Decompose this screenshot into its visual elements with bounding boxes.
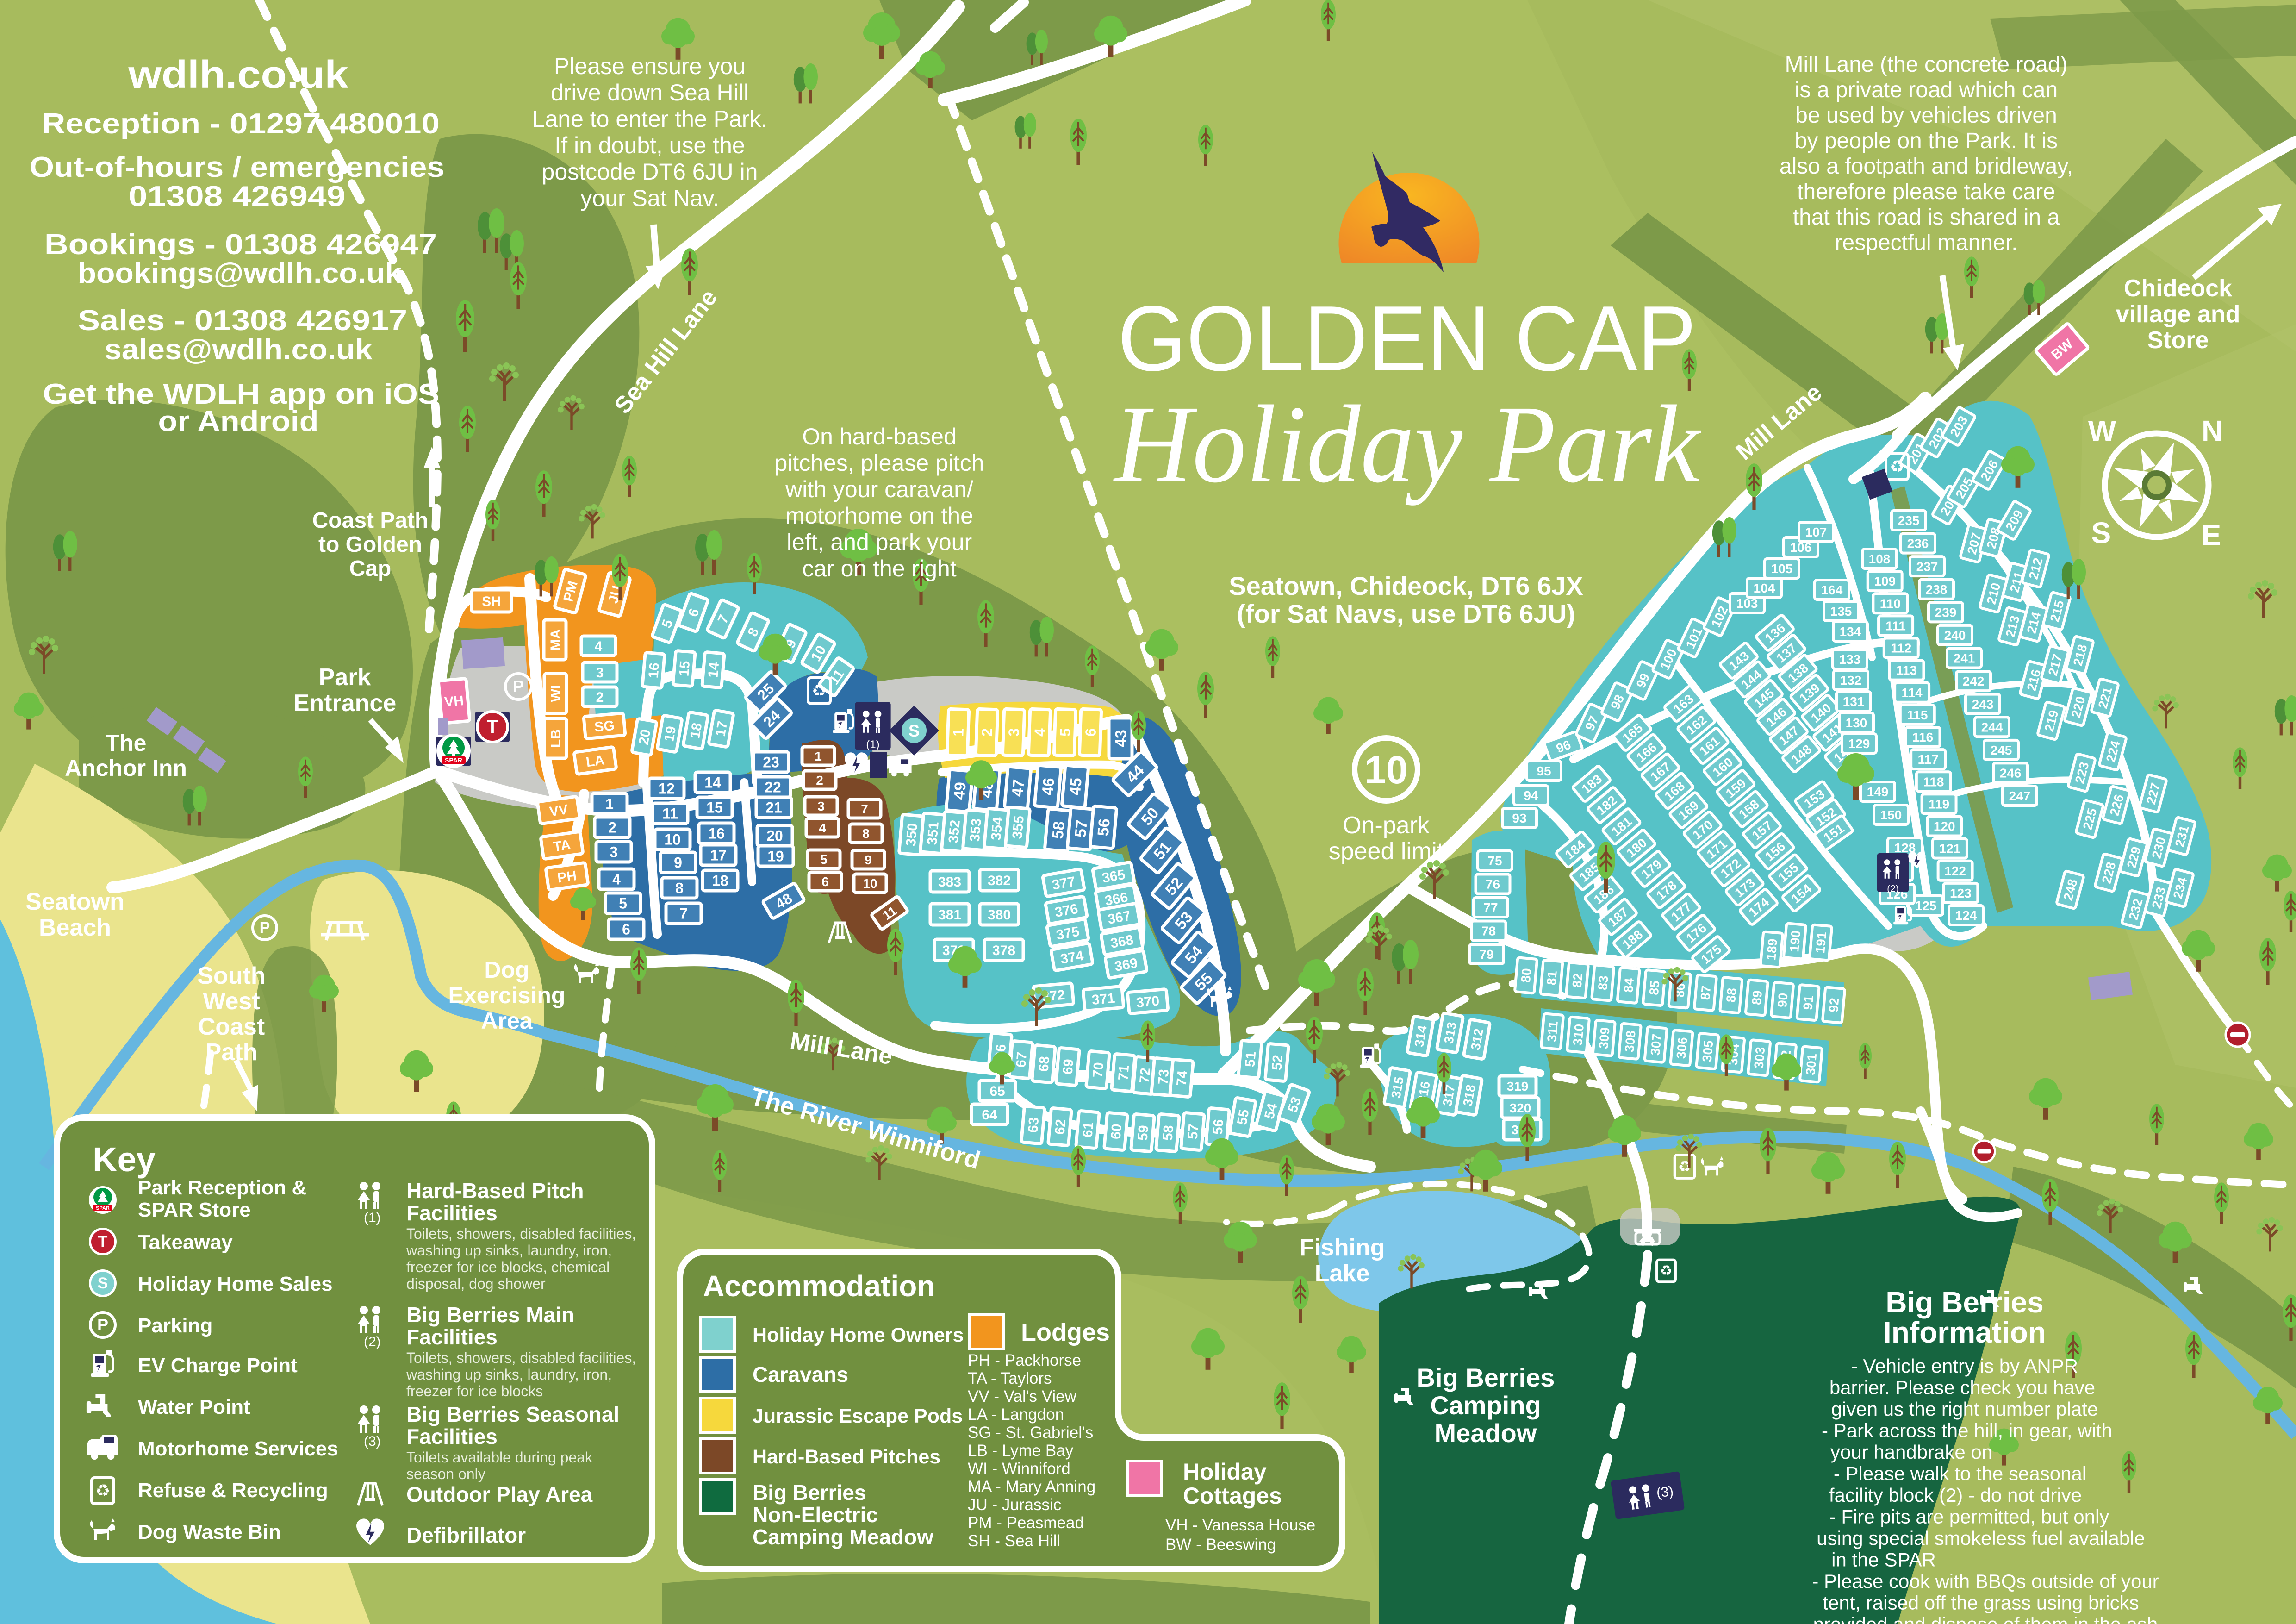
svg-text:(2): (2) bbox=[1887, 884, 1898, 894]
svg-text:164: 164 bbox=[1821, 583, 1843, 597]
svg-text:58: 58 bbox=[1049, 821, 1068, 840]
svg-text:56: 56 bbox=[1095, 818, 1114, 837]
svg-text:Park Reception &: Park Reception & bbox=[138, 1176, 306, 1199]
svg-text:drive down Sea Hill: drive down Sea Hill bbox=[551, 80, 749, 106]
svg-text:133: 133 bbox=[1839, 652, 1861, 667]
svg-text:Big Berries: Big Berries bbox=[753, 1480, 866, 1505]
svg-text:SPAR Store: SPAR Store bbox=[138, 1199, 251, 1221]
svg-text:111: 111 bbox=[1885, 618, 1906, 633]
svg-text:01308 426949: 01308 426949 bbox=[129, 181, 346, 212]
svg-text:Facilities: Facilities bbox=[406, 1325, 498, 1349]
svg-text:SPAR: SPAR bbox=[96, 1206, 110, 1211]
svg-text:131: 131 bbox=[1843, 694, 1865, 709]
svg-text:88: 88 bbox=[1724, 987, 1739, 1003]
svg-text:62: 62 bbox=[1052, 1118, 1069, 1135]
svg-text:Exercising: Exercising bbox=[448, 982, 566, 1008]
svg-text:303: 303 bbox=[1751, 1046, 1767, 1069]
svg-text:69: 69 bbox=[1060, 1058, 1076, 1075]
svg-text:Key: Key bbox=[93, 1140, 156, 1179]
svg-text:236: 236 bbox=[1907, 537, 1929, 551]
svg-text:P: P bbox=[260, 919, 270, 937]
svg-text:BW - Beeswing: BW - Beeswing bbox=[1165, 1536, 1276, 1554]
svg-text:46: 46 bbox=[1039, 777, 1058, 796]
svg-text:43: 43 bbox=[1112, 730, 1130, 747]
svg-text:SG: SG bbox=[594, 718, 615, 735]
svg-text:- Fire pits are permitted, but: - Fire pits are permitted, but only bbox=[1829, 1506, 2109, 1528]
svg-text:Water Point: Water Point bbox=[138, 1396, 250, 1418]
svg-text:On-park: On-park bbox=[1343, 812, 1430, 839]
svg-text:VH - Vanessa House: VH - Vanessa House bbox=[1165, 1516, 1315, 1534]
svg-text:6: 6 bbox=[622, 921, 630, 938]
svg-text:PM - Peasmead: PM - Peasmead bbox=[968, 1514, 1084, 1532]
svg-text:84: 84 bbox=[1621, 977, 1636, 993]
svg-text:87: 87 bbox=[1698, 985, 1714, 1001]
svg-text:S: S bbox=[908, 721, 920, 740]
svg-text:79: 79 bbox=[1479, 947, 1493, 962]
svg-text:Reception - 01297 480010: Reception - 01297 480010 bbox=[42, 108, 440, 140]
svg-text:- Vehicle entry is by ANPR: - Vehicle entry is by ANPR bbox=[1851, 1355, 2078, 1377]
svg-text:320: 320 bbox=[1510, 1101, 1531, 1115]
svg-text:9: 9 bbox=[865, 853, 872, 867]
svg-text:village and: village and bbox=[2116, 301, 2240, 328]
svg-text:20: 20 bbox=[636, 728, 653, 746]
svg-text:94: 94 bbox=[1524, 788, 1538, 803]
svg-text:Coast: Coast bbox=[198, 1013, 265, 1040]
svg-text:washing up sinks, laundry, iro: washing up sinks, laundry, iron, bbox=[406, 1366, 612, 1383]
svg-text:Dog: Dog bbox=[484, 957, 529, 983]
svg-text:307: 307 bbox=[1648, 1033, 1664, 1056]
svg-text:7: 7 bbox=[679, 906, 688, 922]
svg-text:381: 381 bbox=[938, 907, 961, 923]
svg-text:243: 243 bbox=[1972, 697, 1994, 712]
svg-text:11: 11 bbox=[662, 806, 678, 822]
svg-text:or Android: or Android bbox=[158, 406, 319, 437]
svg-text:16: 16 bbox=[646, 662, 662, 679]
svg-text:Mill Lane (the concrete road): Mill Lane (the concrete road) bbox=[1785, 52, 2068, 77]
svg-text:MA - Mary Anning: MA - Mary Anning bbox=[968, 1478, 1095, 1496]
svg-text:(for Sat Navs, use DT6 6JU): (for Sat Navs, use DT6 6JU) bbox=[1237, 599, 1575, 628]
svg-text:E: E bbox=[2202, 518, 2221, 552]
svg-text:93: 93 bbox=[1512, 811, 1526, 825]
svg-text:5: 5 bbox=[1057, 728, 1074, 737]
svg-text:8: 8 bbox=[675, 880, 684, 897]
svg-text:6: 6 bbox=[1082, 728, 1099, 737]
svg-text:117: 117 bbox=[1918, 752, 1939, 767]
svg-text:10: 10 bbox=[664, 831, 681, 848]
svg-text:(3): (3) bbox=[364, 1434, 381, 1449]
svg-text:68: 68 bbox=[1036, 1056, 1052, 1072]
svg-text:129: 129 bbox=[1848, 737, 1870, 751]
svg-text:5: 5 bbox=[820, 852, 828, 867]
svg-text:75: 75 bbox=[1487, 854, 1502, 868]
svg-text:given us the right number plat: given us the right number plate bbox=[1831, 1398, 2098, 1420]
svg-text:81: 81 bbox=[1544, 970, 1560, 986]
svg-text:130: 130 bbox=[1846, 716, 1867, 730]
svg-text:Entrance: Entrance bbox=[293, 690, 397, 717]
svg-text:107: 107 bbox=[1805, 525, 1827, 539]
svg-text:113: 113 bbox=[1896, 663, 1917, 678]
svg-text:W: W bbox=[2088, 414, 2116, 448]
svg-text:247: 247 bbox=[2009, 789, 2031, 803]
svg-text:319: 319 bbox=[1507, 1079, 1529, 1093]
svg-text:♻: ♻ bbox=[95, 1481, 110, 1500]
svg-text:motorhome on the: motorhome on the bbox=[785, 503, 973, 529]
svg-text:118: 118 bbox=[1923, 775, 1944, 789]
svg-text:Toilets, showers, disabled fac: Toilets, showers, disabled facilities, bbox=[406, 1349, 636, 1366]
svg-text:also a footpath and bridleway,: also a footpath and bridleway, bbox=[1780, 154, 2073, 179]
svg-text:7: 7 bbox=[861, 802, 868, 816]
svg-text:Store: Store bbox=[2147, 327, 2209, 354]
svg-text:freezer for ice blocks: freezer for ice blocks bbox=[406, 1383, 543, 1399]
svg-text:4: 4 bbox=[1031, 728, 1048, 737]
svg-text:76: 76 bbox=[1486, 877, 1500, 892]
svg-text:Anchor Inn: Anchor Inn bbox=[65, 755, 187, 781]
svg-text:134: 134 bbox=[1840, 625, 1861, 639]
svg-text:freezer for ice blocks, chemic: freezer for ice blocks, chemical bbox=[406, 1259, 610, 1275]
svg-text:370: 370 bbox=[1136, 993, 1160, 1011]
svg-text:78: 78 bbox=[1481, 924, 1496, 938]
svg-text:disposal, dog shower: disposal, dog shower bbox=[406, 1275, 546, 1292]
svg-text:♻: ♻ bbox=[1890, 457, 1904, 476]
svg-text:by people on the Park. It is: by people on the Park. It is bbox=[1795, 129, 2058, 153]
svg-text:3: 3 bbox=[817, 799, 825, 813]
svg-text:(1): (1) bbox=[866, 738, 879, 751]
svg-text:Park: Park bbox=[319, 664, 371, 691]
svg-text:Meadow: Meadow bbox=[1435, 1418, 1537, 1448]
svg-text:149: 149 bbox=[1867, 785, 1889, 799]
svg-text:Hard-Based Pitches: Hard-Based Pitches bbox=[753, 1446, 940, 1468]
svg-text:105: 105 bbox=[1771, 562, 1793, 576]
svg-text:respectful manner.: respectful manner. bbox=[1835, 231, 2018, 255]
svg-text:in the SPAR: in the SPAR bbox=[1831, 1549, 1936, 1571]
svg-text:77: 77 bbox=[1483, 900, 1498, 915]
svg-text:The: The bbox=[106, 730, 147, 756]
svg-text:380: 380 bbox=[988, 907, 1011, 923]
svg-text:Camping Meadow: Camping Meadow bbox=[753, 1525, 933, 1549]
svg-text:Chideock: Chideock bbox=[2124, 275, 2232, 302]
svg-text:119: 119 bbox=[1929, 797, 1949, 811]
svg-text:14: 14 bbox=[705, 662, 722, 678]
svg-text:facility block (2) - do not dr: facility block (2) - do not drive bbox=[1829, 1484, 2082, 1506]
svg-text:64: 64 bbox=[982, 1107, 997, 1123]
svg-text:12: 12 bbox=[658, 781, 675, 797]
svg-text:- Please cook with BBQs outsid: - Please cook with BBQs outside of your bbox=[1812, 1570, 2159, 1592]
svg-text:bookings@wdlh.co.uk: bookings@wdlh.co.uk bbox=[78, 257, 403, 289]
svg-text:Caravans: Caravans bbox=[753, 1362, 848, 1387]
svg-text:EV Charge Point: EV Charge Point bbox=[138, 1354, 298, 1377]
svg-text:238: 238 bbox=[1926, 582, 1948, 597]
svg-text:Cottages: Cottages bbox=[1183, 1483, 1282, 1509]
svg-text:Fishing: Fishing bbox=[1300, 1234, 1385, 1261]
svg-text:Dog Waste Bin: Dog Waste Bin bbox=[138, 1521, 281, 1543]
svg-text:Big Berries: Big Berries bbox=[1417, 1363, 1555, 1392]
svg-text:306: 306 bbox=[1674, 1037, 1690, 1059]
svg-text:MA: MA bbox=[548, 629, 563, 651]
svg-text:353: 353 bbox=[967, 818, 984, 843]
svg-text:351: 351 bbox=[925, 821, 942, 846]
svg-text:45: 45 bbox=[1066, 777, 1085, 796]
svg-text:JU - Jurassic: JU - Jurassic bbox=[968, 1496, 1061, 1514]
svg-text:2: 2 bbox=[596, 690, 604, 705]
svg-text:3: 3 bbox=[596, 665, 604, 681]
svg-text:Seatown, Chideock, DT6 6JX: Seatown, Chideock, DT6 6JX bbox=[1229, 571, 1583, 600]
svg-text:your Sat Nav.: your Sat Nav. bbox=[580, 185, 719, 211]
svg-text:310: 310 bbox=[1570, 1024, 1587, 1046]
svg-text:383: 383 bbox=[938, 874, 961, 890]
svg-text:245: 245 bbox=[1991, 743, 2012, 757]
svg-text:235: 235 bbox=[1898, 513, 1920, 528]
svg-text:5: 5 bbox=[619, 895, 627, 912]
svg-text:- Please walk to the seasonal: - Please walk to the seasonal bbox=[1834, 1463, 2086, 1485]
svg-text:244: 244 bbox=[1981, 720, 2003, 734]
svg-text:LB: LB bbox=[548, 729, 564, 748]
svg-text:15: 15 bbox=[676, 660, 693, 677]
svg-text:Seatown: Seatown bbox=[25, 888, 124, 915]
svg-text:191: 191 bbox=[1813, 931, 1829, 954]
svg-text:Holiday Park: Holiday Park bbox=[1113, 382, 1702, 506]
svg-text:15: 15 bbox=[706, 800, 723, 816]
svg-text:124: 124 bbox=[1955, 908, 1977, 923]
svg-text:therefore please take care: therefore please take care bbox=[1797, 180, 2055, 204]
svg-text:16: 16 bbox=[708, 825, 725, 842]
svg-text:123: 123 bbox=[1950, 886, 1972, 900]
svg-text:311: 311 bbox=[1544, 1020, 1561, 1043]
svg-text:57: 57 bbox=[1072, 819, 1091, 838]
svg-text:wdlh.co.uk: wdlh.co.uk bbox=[128, 53, 348, 96]
svg-text:PH: PH bbox=[556, 868, 578, 886]
svg-text:237: 237 bbox=[1916, 559, 1938, 574]
svg-text:be used by vehicles driven: be used by vehicles driven bbox=[1795, 103, 2057, 128]
svg-text:SH: SH bbox=[482, 594, 501, 609]
svg-text:Lake: Lake bbox=[1315, 1260, 1370, 1287]
svg-text:63: 63 bbox=[1025, 1117, 1042, 1133]
svg-text:VV - Val's View: VV - Val's View bbox=[968, 1387, 1077, 1405]
svg-text:85: 85 bbox=[1647, 980, 1662, 996]
svg-text:car on the right: car on the right bbox=[802, 556, 957, 581]
svg-text:Refuse & Recycling: Refuse & Recycling bbox=[138, 1479, 328, 1502]
svg-text:N: N bbox=[2202, 414, 2223, 448]
svg-text:4: 4 bbox=[595, 639, 603, 654]
svg-text:Camping: Camping bbox=[1430, 1391, 1541, 1420]
svg-text:is a private road which can: is a private road which can bbox=[1795, 78, 2058, 102]
svg-text:WI: WI bbox=[548, 685, 564, 702]
svg-text:352: 352 bbox=[946, 819, 963, 844]
svg-text:Motorhome Services: Motorhome Services bbox=[138, 1437, 338, 1460]
svg-text:61: 61 bbox=[1080, 1121, 1096, 1138]
svg-text:56: 56 bbox=[1210, 1118, 1226, 1135]
svg-text:378: 378 bbox=[992, 943, 1015, 958]
svg-text:your handbrake on: your handbrake on bbox=[1830, 1441, 1992, 1463]
svg-text:190: 190 bbox=[1787, 930, 1803, 952]
svg-text:VV: VV bbox=[548, 802, 569, 819]
svg-text:65: 65 bbox=[989, 1084, 1005, 1099]
svg-text:WI - Winniford: WI - Winniford bbox=[968, 1460, 1070, 1478]
svg-text:21: 21 bbox=[765, 800, 782, 816]
svg-text:sales@wdlh.co.uk: sales@wdlh.co.uk bbox=[105, 334, 373, 366]
svg-text:150: 150 bbox=[1880, 808, 1902, 822]
svg-text:240: 240 bbox=[1944, 628, 1966, 643]
svg-text:19: 19 bbox=[661, 725, 679, 743]
svg-text:barrier. Please check you have: barrier. Please check you have bbox=[1829, 1377, 2095, 1399]
svg-text:Holiday Home Owners: Holiday Home Owners bbox=[753, 1324, 964, 1346]
svg-text:Takeaway: Takeaway bbox=[138, 1231, 233, 1254]
svg-text:Big Berries Seasonal: Big Berries Seasonal bbox=[406, 1402, 619, 1426]
svg-text:Non-Electric: Non-Electric bbox=[753, 1503, 878, 1527]
svg-text:80: 80 bbox=[1518, 968, 1534, 983]
svg-text:P: P bbox=[513, 677, 524, 696]
svg-text:122: 122 bbox=[1944, 864, 1966, 878]
svg-text:18: 18 bbox=[687, 722, 705, 740]
svg-text:112: 112 bbox=[1891, 641, 1911, 656]
svg-text:Bookings - 01308 426947: Bookings - 01308 426947 bbox=[44, 229, 437, 261]
svg-text:SH - Sea Hill: SH - Sea Hill bbox=[968, 1532, 1060, 1550]
svg-text:Path: Path bbox=[205, 1039, 258, 1066]
svg-text:355: 355 bbox=[1010, 815, 1027, 840]
svg-text:Parking: Parking bbox=[138, 1314, 212, 1337]
svg-text:Jurassic Escape Pods: Jurassic Escape Pods bbox=[753, 1405, 963, 1427]
svg-text:1: 1 bbox=[815, 749, 822, 763]
svg-text:using special smokeless fuel a: using special smokeless fuel available bbox=[1817, 1527, 2145, 1549]
svg-text:350: 350 bbox=[903, 823, 921, 847]
svg-text:(3): (3) bbox=[1655, 1483, 1674, 1501]
svg-text:241: 241 bbox=[1954, 651, 1975, 666]
svg-text:309: 309 bbox=[1596, 1027, 1612, 1049]
svg-text:110: 110 bbox=[1880, 596, 1901, 611]
svg-text:LA - Langdon: LA - Langdon bbox=[968, 1405, 1064, 1424]
svg-text:47: 47 bbox=[1009, 779, 1028, 798]
svg-text:57: 57 bbox=[1185, 1123, 1201, 1140]
svg-text:83: 83 bbox=[1595, 975, 1611, 991]
svg-text:(1): (1) bbox=[364, 1210, 381, 1225]
svg-text:67: 67 bbox=[1013, 1051, 1030, 1068]
svg-text:- Park across the hill, in gea: - Park across the hill, in gear, with bbox=[1822, 1420, 2112, 1442]
svg-text:70: 70 bbox=[1090, 1062, 1107, 1078]
svg-text:20: 20 bbox=[766, 828, 783, 844]
svg-text:114: 114 bbox=[1902, 686, 1923, 700]
svg-text:49: 49 bbox=[951, 781, 970, 800]
svg-text:242: 242 bbox=[1963, 674, 1985, 688]
svg-text:6: 6 bbox=[821, 874, 829, 889]
svg-text:95: 95 bbox=[1537, 764, 1551, 778]
svg-text:18: 18 bbox=[712, 873, 728, 889]
svg-text:that this road is shared in a: that this road is shared in a bbox=[1793, 205, 2060, 230]
svg-text:71: 71 bbox=[1115, 1064, 1132, 1081]
svg-text:On hard-based: On hard-based bbox=[802, 424, 957, 450]
svg-text:1: 1 bbox=[605, 796, 614, 812]
svg-text:3: 3 bbox=[610, 844, 618, 861]
svg-text:Big Berries Main: Big Berries Main bbox=[406, 1303, 574, 1327]
svg-text:LB - Lyme Bay: LB - Lyme Bay bbox=[968, 1442, 1074, 1460]
svg-text:Coast Path: Coast Path bbox=[312, 508, 429, 533]
svg-text:125: 125 bbox=[1915, 899, 1937, 913]
svg-text:4: 4 bbox=[612, 871, 621, 888]
svg-text:Toilets available during peak: Toilets available during peak bbox=[406, 1449, 593, 1466]
svg-text:14: 14 bbox=[704, 775, 721, 791]
svg-text:Hard-Based Pitch: Hard-Based Pitch bbox=[406, 1179, 584, 1203]
svg-text:pitches, please pitch: pitches, please pitch bbox=[774, 450, 984, 476]
svg-text:17: 17 bbox=[710, 847, 727, 864]
svg-text:tent, raised off the grass usi: tent, raised off the grass using bricks bbox=[1823, 1592, 2139, 1614]
svg-text:Information: Information bbox=[1883, 1316, 2046, 1349]
svg-text:postcode DT6 6JU in: postcode DT6 6JU in bbox=[542, 159, 758, 185]
svg-text:TA - Taylors: TA - Taylors bbox=[968, 1369, 1052, 1387]
svg-text:10: 10 bbox=[1364, 748, 1407, 792]
svg-text:8: 8 bbox=[862, 826, 870, 841]
svg-text:116: 116 bbox=[1912, 730, 1933, 744]
svg-text:246: 246 bbox=[2000, 766, 2022, 781]
svg-text:90: 90 bbox=[1775, 993, 1791, 1008]
svg-text:T: T bbox=[98, 1233, 108, 1250]
svg-text:52: 52 bbox=[1269, 1054, 1286, 1071]
svg-text:P: P bbox=[97, 1315, 108, 1334]
svg-text:Beach: Beach bbox=[39, 914, 111, 941]
svg-text:108: 108 bbox=[1869, 552, 1891, 566]
svg-text:60: 60 bbox=[1108, 1123, 1125, 1140]
svg-text:189: 189 bbox=[1764, 938, 1780, 961]
svg-text:Cap: Cap bbox=[349, 556, 392, 581]
svg-text:Outdoor Play Area: Outdoor Play Area bbox=[406, 1482, 593, 1506]
svg-text:109: 109 bbox=[1874, 574, 1896, 588]
svg-text:Lane to enter the Park.: Lane to enter the Park. bbox=[532, 106, 768, 132]
svg-text:Area: Area bbox=[481, 1008, 533, 1034]
svg-text:2: 2 bbox=[978, 728, 996, 737]
svg-text:51: 51 bbox=[1242, 1051, 1259, 1068]
svg-text:speed limit: speed limit bbox=[1329, 838, 1444, 865]
svg-text:22: 22 bbox=[765, 779, 781, 796]
svg-text:VH: VH bbox=[444, 693, 464, 710]
svg-text:Defibrillator: Defibrillator bbox=[406, 1523, 526, 1547]
svg-text:If in doubt, use the: If in doubt, use the bbox=[554, 132, 745, 158]
svg-text:PH - Packhorse: PH - Packhorse bbox=[968, 1351, 1081, 1369]
svg-text:3: 3 bbox=[1005, 728, 1022, 737]
svg-text:Facilities: Facilities bbox=[406, 1201, 498, 1225]
svg-text:Holiday: Holiday bbox=[1183, 1459, 1267, 1485]
svg-text:(2): (2) bbox=[364, 1334, 381, 1349]
svg-text:91: 91 bbox=[1800, 995, 1816, 1011]
svg-text:washing up sinks, laundry, iro: washing up sinks, laundry, iron, bbox=[406, 1242, 612, 1259]
svg-text:135: 135 bbox=[1830, 604, 1852, 618]
svg-text:Lodges: Lodges bbox=[1021, 1318, 1110, 1346]
svg-text:with your caravan/: with your caravan/ bbox=[785, 476, 973, 502]
svg-text:59: 59 bbox=[1135, 1124, 1151, 1141]
svg-text:Facilities: Facilities bbox=[406, 1424, 498, 1449]
svg-text:West: West bbox=[203, 988, 260, 1015]
svg-text:to Golden: to Golden bbox=[318, 532, 422, 557]
svg-text:239: 239 bbox=[1935, 605, 1957, 619]
svg-text:2: 2 bbox=[816, 773, 823, 787]
svg-text:♻: ♻ bbox=[1660, 1263, 1672, 1279]
svg-text:SG - St. Gabriel's: SG - St. Gabriel's bbox=[968, 1424, 1093, 1442]
svg-text:308: 308 bbox=[1622, 1030, 1638, 1053]
svg-text:92: 92 bbox=[1826, 997, 1842, 1013]
svg-text:354: 354 bbox=[989, 816, 1006, 841]
svg-text:120: 120 bbox=[1934, 819, 1955, 834]
svg-text:121: 121 bbox=[1939, 842, 1961, 856]
svg-text:Out-of-hours / emergencies: Out-of-hours / emergencies bbox=[30, 151, 445, 183]
svg-text:104: 104 bbox=[1754, 581, 1775, 595]
svg-text:10: 10 bbox=[863, 876, 877, 891]
svg-text:T: T bbox=[487, 717, 498, 737]
svg-text:Please ensure you: Please ensure you bbox=[554, 53, 746, 79]
svg-text:Sales - 01308 426917: Sales - 01308 426917 bbox=[78, 305, 407, 337]
svg-text:58: 58 bbox=[1160, 1124, 1176, 1141]
svg-text:provided and dispose of them i: provided and dispose of them in the ash bbox=[1813, 1613, 2158, 1624]
svg-text:LA: LA bbox=[585, 752, 605, 770]
svg-text:SPAR: SPAR bbox=[445, 756, 462, 764]
svg-text:Holiday Home Sales: Holiday Home Sales bbox=[138, 1273, 333, 1295]
svg-text:♻: ♻ bbox=[812, 681, 827, 700]
svg-text:Accommodation: Accommodation bbox=[703, 1269, 935, 1303]
